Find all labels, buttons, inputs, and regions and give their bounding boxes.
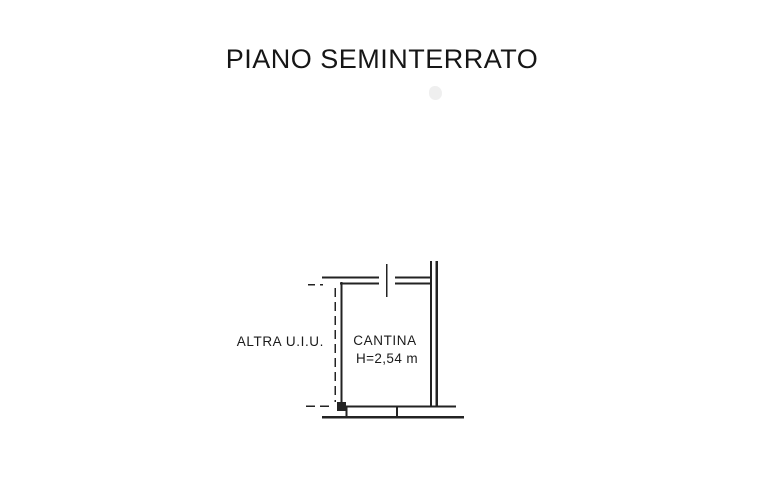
room-label: CANTINA <box>353 333 416 348</box>
adjacent-unit-label: ALTRA U.I.U. <box>237 334 324 349</box>
room-height-label: H=2,54 m <box>356 351 418 366</box>
wall-junction-corner <box>337 402 346 411</box>
floor-plan-drawing: ALTRA U.I.U. CANTINA H=2,54 m <box>0 0 764 492</box>
scanned-floor-plan-page: PIANO SEMINTERRATO A <box>0 0 764 492</box>
